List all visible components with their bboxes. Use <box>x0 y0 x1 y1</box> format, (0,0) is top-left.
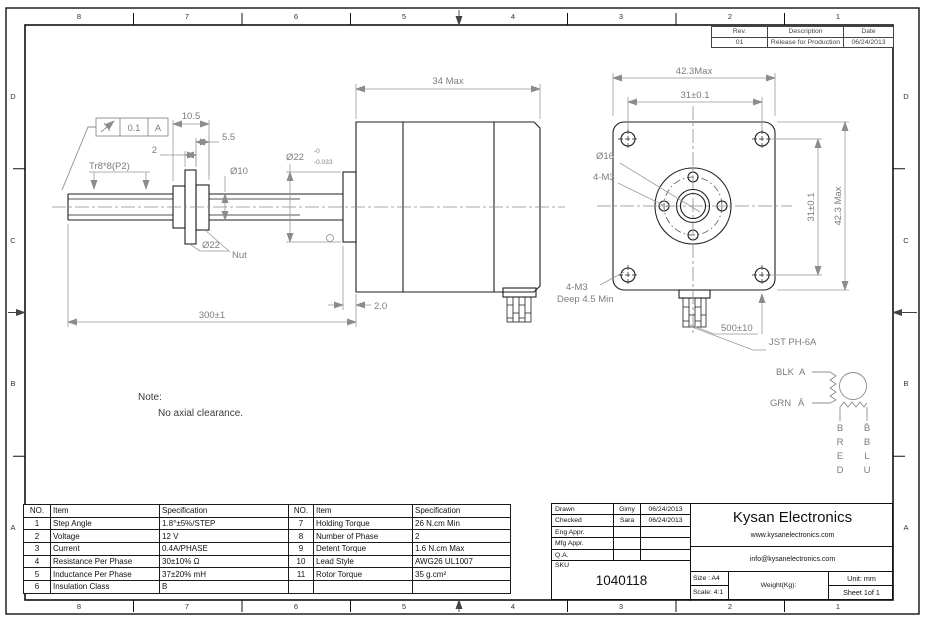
tb-date <box>641 527 691 538</box>
dim-lead-length: 500±10 <box>721 323 753 334</box>
dim-flange-dia: Ø22 <box>202 240 220 251</box>
spec-value: B <box>160 581 289 594</box>
spec-value: 2 <box>413 530 511 543</box>
spec-header: Specification <box>413 505 511 518</box>
wire-grn-label: GRN <box>770 398 791 409</box>
rotor-symbol <box>840 373 867 400</box>
spec-item: Step Angle <box>51 517 160 530</box>
dim-hole-cc-horizontal: 31±0.1 <box>681 90 710 101</box>
phase-b-coil <box>840 402 867 407</box>
zone-row: C <box>10 236 16 245</box>
wire-blu-letter: B <box>864 437 870 448</box>
spec-value: 26 N.cm Min <box>413 517 511 530</box>
spec-item: Insulation Class <box>51 581 160 594</box>
spec-item: Number of Phase <box>314 530 413 543</box>
tb-name <box>614 550 641 561</box>
drawing-sheet: 8 7 6 5 4 3 2 1 8 7 6 5 4 3 2 1 D C B A … <box>0 0 925 622</box>
tb-date: 06/24/2013 <box>641 504 691 515</box>
spec-no <box>289 581 314 594</box>
dim-face-width: 42.3Max <box>676 66 713 77</box>
zone-col: 1 <box>836 602 840 611</box>
tolerance-datum: A <box>155 123 161 133</box>
company-cell: Kysan Electronics www.kysanelectronics.c… <box>691 504 894 546</box>
tb-date <box>641 538 691 549</box>
spec-value: 0.4A/PHASE <box>160 543 289 556</box>
spec-value: 1.6 N.cm Max <box>413 543 511 556</box>
size-cell: Size : A4 <box>691 572 729 586</box>
dim-pilot-dia: Ø22 -0 -0.033 <box>286 145 333 166</box>
zone-col: 3 <box>619 602 623 611</box>
spec-item: Holding Torque <box>314 517 413 530</box>
zone-col: 7 <box>185 12 189 21</box>
zone-row: A <box>10 523 15 532</box>
nut-label: Nut <box>232 250 247 261</box>
zone-col: 8 <box>77 602 81 611</box>
dim-flange-width: 2 <box>152 145 157 156</box>
dim-nut-step: 5.5 <box>222 132 235 143</box>
title-block: Drawn Gimy 06/24/2013 Checked Sara 06/24… <box>551 503 893 600</box>
spec-no: 1 <box>24 517 51 530</box>
spec-table-right: NO. Item Specification 7Holding Torque26… <box>288 504 511 594</box>
tb-name <box>614 527 641 538</box>
phase-a-bar-label: Ā <box>798 398 805 409</box>
sku-cell: SKU 1040118 <box>552 561 691 601</box>
wire-blu-letter: U <box>864 465 871 476</box>
dim-rear-depth: Deep 4.5 Min <box>557 294 614 305</box>
spec-value: 30±10% Ω <box>160 555 289 568</box>
spec-value: 35 g.cm² <box>413 568 511 581</box>
phase-b-label: B <box>837 423 843 434</box>
spec-value <box>413 581 511 594</box>
tb-name: Gimy <box>614 504 641 515</box>
spec-header: Item <box>51 505 160 518</box>
connector-label: JST PH-6A <box>769 337 817 348</box>
dim-motor-length: 34 Max <box>432 76 463 87</box>
company-email: info@kysanelectronics.com <box>691 546 894 571</box>
tb-bottom-band: Size : A4 Scale: 4:1 Weight(Kg): Unit: m… <box>691 571 894 600</box>
zone-col: 8 <box>77 12 81 21</box>
zone-col: 3 <box>619 12 623 21</box>
datum-target-symbol <box>327 235 334 242</box>
zone-col: 5 <box>402 12 406 21</box>
sheet-cell: Sheet 1of 1 <box>829 586 894 600</box>
spec-header: Specification <box>160 505 289 518</box>
tb-name <box>614 538 641 549</box>
dim-front-holes: 4-M3 <box>593 172 615 183</box>
spec-item: Inductance Per Phase <box>51 568 160 581</box>
zone-row: D <box>10 92 16 101</box>
dim-screw-length: 300±1 <box>199 310 225 321</box>
weight-cell: Weight(Kg): <box>729 572 829 600</box>
spec-no: 2 <box>24 530 51 543</box>
wire-red-letter: E <box>837 451 843 462</box>
zone-col: 2 <box>728 602 732 611</box>
spec-no: 8 <box>289 530 314 543</box>
phase-a-label: A <box>799 367 806 378</box>
sku-number: 1040118 <box>552 573 691 588</box>
zone-row: B <box>10 379 15 388</box>
tb-date <box>641 550 691 561</box>
spec-value: 12 V <box>160 530 289 543</box>
dim-thread-spec: Tr8*8(P2) <box>89 161 130 172</box>
company-website: www.kysanelectronics.com <box>691 532 894 539</box>
note-label: Note: <box>138 392 162 403</box>
zone-col: 4 <box>511 602 515 611</box>
zone-col: 4 <box>511 12 515 21</box>
tb-label: Mfg Appr. <box>552 538 614 549</box>
rev-header: Rev. <box>712 27 768 38</box>
revision-table: Rev. Description Date 01 Release for Pro… <box>711 26 894 48</box>
rev-cell: Release for Production <box>768 37 844 48</box>
spec-header: Item <box>314 505 413 518</box>
zone-col: 6 <box>294 12 298 21</box>
zone-col: 6 <box>294 602 298 611</box>
wire-red-letter: R <box>837 437 844 448</box>
sku-label: SKU <box>555 562 569 569</box>
wire-blu-letter: L <box>864 451 869 462</box>
dim-face-height: 42.3 Max <box>833 186 844 225</box>
dim-shaft-dia: Ø10 <box>230 166 248 177</box>
wire-red-letter: D <box>837 465 844 476</box>
wiring-diagram <box>812 372 867 421</box>
unit-cell: Unit: mm <box>829 572 894 586</box>
runout-icon <box>101 121 114 132</box>
spec-value: AWG26 UL1007 <box>413 555 511 568</box>
zone-row: B <box>903 379 908 388</box>
tb-label: Checked <box>552 515 614 526</box>
spec-header: NO. <box>24 505 51 518</box>
zone-col: 7 <box>185 602 189 611</box>
rev-cell: 01 <box>712 37 768 48</box>
dim-nut-length: 10.5 <box>182 111 201 122</box>
dim-boss-dia: Ø16 <box>596 151 614 162</box>
spec-value: 1.8°±5%/STEP <box>160 517 289 530</box>
zone-col: 1 <box>836 12 840 21</box>
spec-item: Voltage <box>51 530 160 543</box>
spec-no: 3 <box>24 543 51 556</box>
dim-rear-holes: 4-M3 <box>566 282 588 293</box>
spec-table-left: NO. Item Specification 1Step Angle1.8°±5… <box>23 504 289 594</box>
scale-cell: Scale: 4:1 <box>691 586 729 600</box>
spec-no: 10 <box>289 555 314 568</box>
rev-header: Description <box>768 27 844 38</box>
spec-header: NO. <box>289 505 314 518</box>
spec-item: Lead Style <box>314 555 413 568</box>
spec-no: 11 <box>289 568 314 581</box>
rev-cell: 06/24/2013 <box>844 37 894 48</box>
spec-item: Detent Torque <box>314 543 413 556</box>
zone-row: A <box>903 523 908 532</box>
face-view-motor <box>613 122 775 327</box>
spec-no: 4 <box>24 555 51 568</box>
spec-no: 9 <box>289 543 314 556</box>
phase-a-coil <box>830 372 836 403</box>
spec-no: 5 <box>24 568 51 581</box>
wiring-labels: BLK A GRN Ā B R E D B̄ B L U <box>770 367 871 476</box>
spec-value: 37±20% mH <box>160 568 289 581</box>
spec-item: Current <box>51 543 160 556</box>
tb-label: Drawn <box>552 504 614 515</box>
tb-label: Q.A. <box>552 550 614 561</box>
tb-date: 06/24/2013 <box>641 515 691 526</box>
rev-header: Date <box>844 27 894 38</box>
zone-row: C <box>903 236 909 245</box>
tolerance-value: 0.1 <box>128 123 141 133</box>
note-text: No axial clearance. <box>158 408 243 419</box>
company-name: Kysan Electronics <box>691 509 894 526</box>
zone-row: D <box>903 92 909 101</box>
tb-name: Sara <box>614 515 641 526</box>
tb-label: Eng Appr. <box>552 527 614 538</box>
dim-hole-cc-vertical: 31±0.1 <box>806 193 817 222</box>
spec-item <box>314 581 413 594</box>
spec-item: Rotor Torque <box>314 568 413 581</box>
spec-no: 7 <box>289 517 314 530</box>
dim-pilot-width: 2.0 <box>374 301 387 312</box>
spec-no: 6 <box>24 581 51 594</box>
phase-b-bar-label: B̄ <box>864 423 870 434</box>
face-view-centerlines <box>597 106 792 335</box>
zone-col: 5 <box>402 602 406 611</box>
wire-blk-label: BLK <box>776 367 795 378</box>
spec-item: Resistance Per Phase <box>51 555 160 568</box>
zone-col: 2 <box>728 12 732 21</box>
